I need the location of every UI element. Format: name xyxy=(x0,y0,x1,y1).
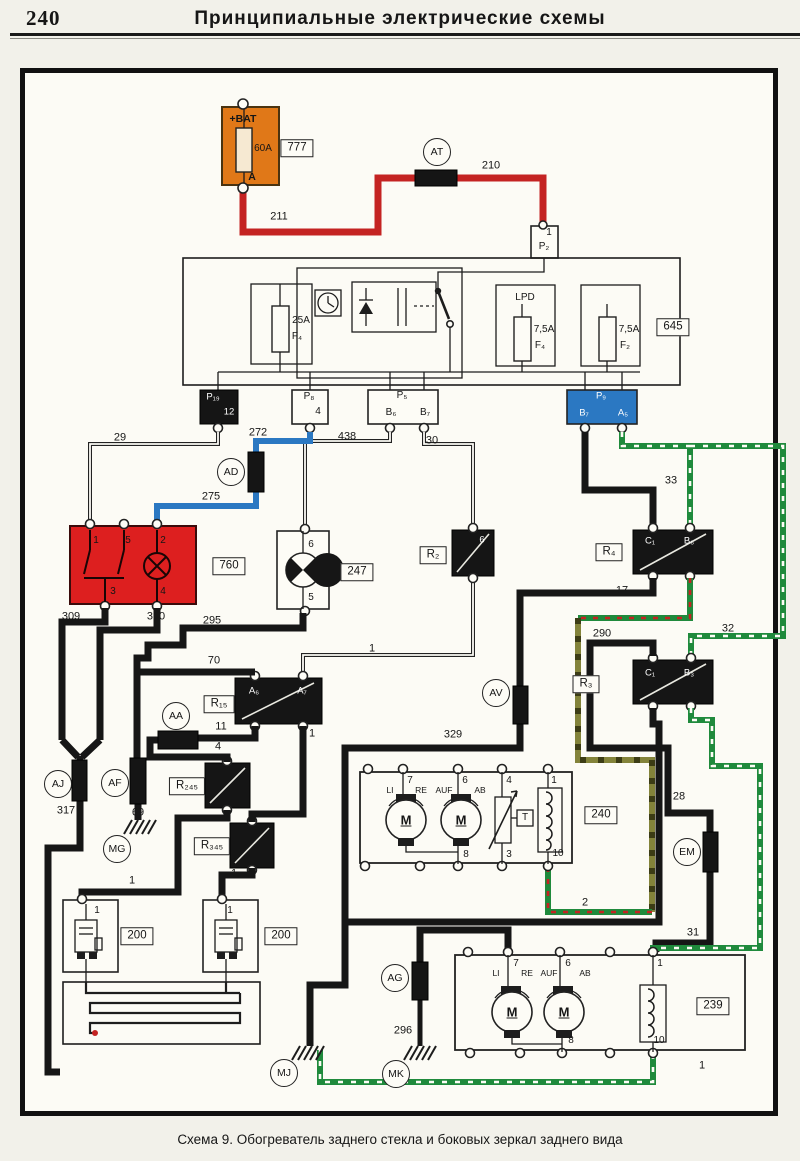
pin-p5-b7: B₇ xyxy=(420,408,430,418)
fuse-75a-right: 7,5A xyxy=(619,325,640,335)
fuse-25a: 25A xyxy=(292,316,310,326)
wire-438: 438 xyxy=(338,432,356,443)
connector-p8: P₈ xyxy=(304,392,315,402)
pin-760-5: 5 xyxy=(125,536,131,546)
fuse-f2: F₂ xyxy=(620,341,630,351)
battery-fuse-rating: 60A xyxy=(254,144,272,154)
connector-ag: AG xyxy=(381,964,409,992)
motor-right-240: M xyxy=(456,814,467,827)
wire-2: 2 xyxy=(582,898,588,909)
pin-p19-12: 12 xyxy=(224,407,235,417)
wire-296: 296 xyxy=(394,1026,412,1037)
component-tag-645: 645 xyxy=(656,318,689,336)
fuse-75a-left: 7,5A xyxy=(534,325,555,335)
pin-239-6: 6 xyxy=(565,959,571,969)
pin-r3-c1: C₁ xyxy=(645,668,655,678)
pin-760-2: 2 xyxy=(160,536,166,546)
component-tag-r245: R₂₄₅ xyxy=(169,777,205,795)
ground-mg: MG xyxy=(103,835,131,863)
label-re-239: RE xyxy=(521,969,533,978)
wire-28: 28 xyxy=(673,792,685,803)
wire-309: 309 xyxy=(62,612,80,623)
component-tag-247: 247 xyxy=(340,563,373,581)
pin-p9-b7: B₇ xyxy=(579,408,589,418)
label-ab-240: AB xyxy=(474,786,485,795)
pin-200r-1: 1 xyxy=(227,906,233,916)
wire-4: 4 xyxy=(215,742,221,753)
component-tag-r4: R₄ xyxy=(596,543,623,561)
label-ab-239: AB xyxy=(579,969,590,978)
pin-p2-1: 1 xyxy=(546,228,552,238)
label-auf-239: AUF xyxy=(541,969,558,978)
schematic-page: 240 Принципиальные электрические схемы xyxy=(0,0,800,1161)
pin-240-4: 4 xyxy=(506,776,512,786)
diagram-caption: Схема 9. Обогреватель заднего стекла и б… xyxy=(0,1132,800,1147)
wire-70: 70 xyxy=(208,656,220,667)
connector-p19: P₁₉ xyxy=(206,392,219,402)
wire-210: 210 xyxy=(482,161,500,172)
wire-275: 275 xyxy=(202,492,220,503)
label-layer: +BAT60AA777AT2102111P₂64525AF₄LPD7,5AF₄7… xyxy=(0,0,800,1161)
connector-av: AV xyxy=(482,679,510,707)
label-li-239: LI xyxy=(492,969,499,978)
pin-247-5: 5 xyxy=(308,593,314,603)
pin-239-10: 10 xyxy=(653,1036,664,1046)
fuse-f4: F₄ xyxy=(292,332,302,342)
connector-at: AT xyxy=(423,138,451,166)
connector-ad: AD xyxy=(217,458,245,486)
connector-p9: P₉ xyxy=(596,391,606,401)
wire-1-right200: 1 xyxy=(231,869,237,880)
battery-terminal-a: A xyxy=(248,172,256,183)
label-re-240: RE xyxy=(415,786,427,795)
wire-11: 11 xyxy=(215,722,226,733)
motor-left-239: M xyxy=(507,1006,518,1019)
component-tag-777: 777 xyxy=(280,139,313,157)
wire-1-green: 1 xyxy=(699,1061,705,1072)
component-tag-r2: R₂ xyxy=(420,546,447,564)
pin-240-6: 6 xyxy=(462,776,468,786)
connector-p2: P₂ xyxy=(539,242,550,252)
pin-239-1: 1 xyxy=(657,959,663,969)
pin-p8-4: 4 xyxy=(315,407,321,417)
label-auf-240: AUF xyxy=(436,786,453,795)
wire-17: 17 xyxy=(616,586,628,597)
motor-right-239: M xyxy=(559,1006,570,1019)
wire-329: 329 xyxy=(444,730,462,741)
wire-317: 317 xyxy=(57,806,75,817)
wire-1-left200: 1 xyxy=(129,876,135,887)
wire-33: 33 xyxy=(665,476,677,487)
wire-1-r15-r345: 1 xyxy=(309,729,315,740)
pin-r2-6: 6 xyxy=(479,535,484,545)
pin-239-7: 7 xyxy=(513,959,519,969)
wire-272: 272 xyxy=(249,428,267,439)
wire-310: 310 xyxy=(147,612,165,623)
component-tag-r15: R₁₅ xyxy=(204,695,235,713)
wire-211: 211 xyxy=(270,212,288,223)
pin-760-4: 4 xyxy=(160,587,166,597)
pin-r15-a6: A₆ xyxy=(249,686,259,696)
pin-240-10: 10 xyxy=(552,849,563,859)
component-tag-200-left: 200 xyxy=(120,927,153,945)
wire-29: 29 xyxy=(114,433,126,444)
battery-plus-label: +BAT xyxy=(230,114,257,125)
connector-em: EM xyxy=(673,838,701,866)
connector-aj: AJ xyxy=(44,770,72,798)
pin-200l-1: 1 xyxy=(94,906,100,916)
pin-r4-b6: B₆ xyxy=(684,536,694,546)
wire-295: 295 xyxy=(203,616,221,627)
component-tag-240: 240 xyxy=(584,806,617,824)
pin-p5-b6: B₆ xyxy=(386,408,397,418)
component-tag-200-right: 200 xyxy=(264,927,297,945)
wire-290: 290 xyxy=(593,629,611,640)
pin-p9-a5: A₅ xyxy=(618,408,628,418)
component-tag-239: 239 xyxy=(696,997,729,1015)
wire-32: 32 xyxy=(722,624,734,635)
pin-240-7: 7 xyxy=(407,776,413,786)
wire-69: 69 xyxy=(132,808,144,819)
pin-240-3: 3 xyxy=(506,850,512,860)
motor-left-240: M xyxy=(401,814,412,827)
pin-760-3: 3 xyxy=(110,587,116,597)
ground-mj: MJ xyxy=(270,1059,298,1087)
ground-mk: MK xyxy=(382,1060,410,1088)
component-tag-760: 760 xyxy=(212,557,245,575)
pin-r4-c1: C₁ xyxy=(645,536,655,546)
connector-p5: P₅ xyxy=(397,391,408,401)
connector-af: AF xyxy=(101,769,129,797)
pin-r3-b3: B₃ xyxy=(684,668,694,678)
fuse-f4-right: F₄ xyxy=(535,341,545,351)
pin-239-8: 8 xyxy=(568,1036,574,1046)
component-tag-r345: R₃₄₅ xyxy=(194,837,230,855)
pin-r15-a7: A₇ xyxy=(297,686,307,696)
wire-1-r2-r15: 1 xyxy=(369,644,375,655)
wire-31: 31 xyxy=(687,928,699,939)
label-li-240: LI xyxy=(386,786,393,795)
pin-240-8: 8 xyxy=(463,850,469,860)
pin-760-1: 1 xyxy=(93,536,99,546)
component-tag-r3: R₃ xyxy=(573,675,600,693)
lpd-label: LPD xyxy=(515,293,534,303)
connector-aa: AA xyxy=(162,702,190,730)
wire-30: 30 xyxy=(426,436,438,447)
pin-240-1: 1 xyxy=(551,776,557,786)
pin-247-6: 6 xyxy=(308,540,314,550)
sensor-t-240: T xyxy=(522,813,528,823)
